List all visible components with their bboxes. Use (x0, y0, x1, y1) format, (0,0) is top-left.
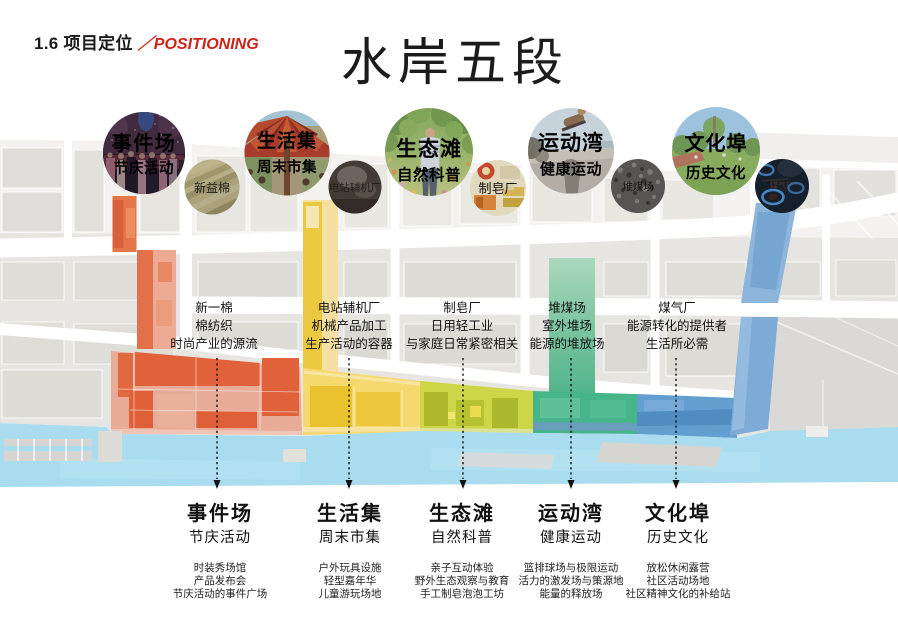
svg-text:棉纺织: 棉纺织 (195, 319, 233, 333)
svg-text:健康运动: 健康运动 (540, 160, 602, 178)
svg-text:制皂厂: 制皂厂 (443, 301, 481, 315)
svg-text:时尚产业的源流: 时尚产业的源流 (170, 336, 258, 351)
svg-text:时装秀场馆: 时装秀场馆 (194, 561, 247, 574)
svg-text:电站辅机厂: 电站辅机厂 (318, 301, 381, 315)
svg-text:能源转化的提供者: 能源转化的提供者 (627, 318, 727, 333)
svg-text:节庆活动的事件广场: 节庆活动的事件广场 (173, 587, 268, 600)
svg-text:文化埠: 文化埠 (685, 131, 748, 155)
svg-text:煤气厂: 煤气厂 (770, 180, 794, 190)
svg-text:1.6 项目定位 ／POSITIONING: 1.6 项目定位 ／POSITIONING (34, 33, 259, 53)
svg-text:机械产品加工: 机械产品加工 (311, 318, 386, 333)
svg-text:文化埠: 文化埠 (645, 501, 711, 525)
svg-text:制皂厂: 制皂厂 (478, 181, 517, 196)
svg-text:活力的激发场与策源地: 活力的激发场与策源地 (519, 574, 624, 587)
svg-text:事件场: 事件场 (112, 131, 177, 155)
svg-text:健康运动: 健康运动 (540, 529, 602, 546)
svg-text:自然科普: 自然科普 (431, 529, 493, 546)
svg-text:与家庭日常紧密相关: 与家庭日常紧密相关 (406, 336, 519, 351)
svg-text:儿童游玩场地: 儿童游玩场地 (319, 587, 382, 600)
svg-text:历史文化: 历史文化 (686, 164, 746, 182)
svg-text:篮排球场与极限运动: 篮排球场与极限运动 (524, 561, 619, 574)
svg-text:运动湾: 运动湾 (538, 501, 604, 525)
svg-text:户外玩具设施: 户外玩具设施 (319, 561, 382, 574)
svg-text:放松休闲露营: 放松休闲露营 (647, 561, 710, 574)
svg-text:煤气厂: 煤气厂 (658, 300, 696, 315)
svg-text:电站辅机厂: 电站辅机厂 (329, 181, 382, 194)
svg-text:生态滩: 生态滩 (396, 137, 462, 161)
svg-text:野外生态观察与教育: 野外生态观察与教育 (415, 574, 510, 587)
svg-text:产品发布会: 产品发布会 (194, 574, 247, 587)
svg-text:事件场: 事件场 (187, 501, 253, 525)
svg-text:能量的释放场: 能量的释放场 (540, 587, 603, 600)
svg-text:历史文化: 历史文化 (647, 529, 709, 546)
svg-text:自然科普: 自然科普 (397, 165, 461, 184)
svg-text:周末市集: 周末市集 (319, 529, 381, 546)
svg-text:堆煤场: 堆煤场 (548, 301, 586, 315)
svg-text:日用轻工业: 日用轻工业 (431, 319, 494, 333)
svg-text:生活所必需: 生活所必需 (646, 337, 709, 351)
svg-text:社区精神文化的补给站: 社区精神文化的补给站 (626, 587, 731, 600)
svg-text:水岸五段: 水岸五段 (341, 34, 569, 91)
svg-text:室外堆场: 室外堆场 (542, 318, 592, 333)
svg-text:亲子互动体验: 亲子互动体验 (431, 561, 494, 574)
svg-text:生活集: 生活集 (257, 129, 317, 152)
svg-text:生活集: 生活集 (317, 501, 383, 525)
svg-text:生产活动的容器: 生产活动的容器 (305, 336, 393, 351)
svg-text:手工制皂泡泡工坊: 手工制皂泡泡工坊 (420, 587, 504, 600)
svg-text:生态滩: 生态滩 (429, 501, 495, 525)
svg-text:周末市集: 周末市集 (257, 158, 317, 176)
svg-text:能源的堆放场: 能源的堆放场 (529, 336, 604, 351)
svg-text:新益棉: 新益棉 (194, 180, 230, 195)
svg-text:新一棉: 新一棉 (195, 300, 233, 315)
svg-text:运动湾: 运动湾 (538, 131, 604, 155)
svg-text:堆煤场: 堆煤场 (622, 180, 654, 193)
svg-text:轻型嘉年华: 轻型嘉年华 (324, 574, 377, 587)
svg-text:社区活动场地: 社区活动场地 (647, 574, 710, 587)
svg-text:节庆活动: 节庆活动 (114, 159, 174, 177)
svg-text:节庆活动: 节庆活动 (189, 529, 251, 546)
